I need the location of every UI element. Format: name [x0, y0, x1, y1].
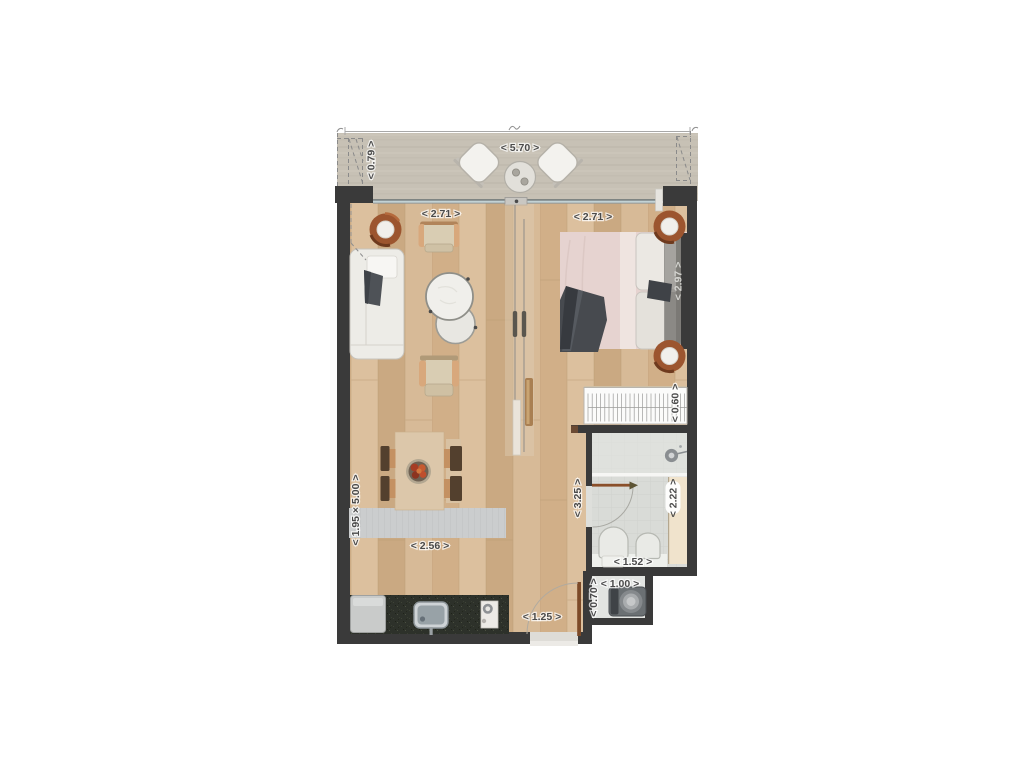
- svg-text:< 0.79 >: < 0.79 >: [366, 141, 378, 180]
- svg-text:< 2.97 >: < 2.97 >: [673, 262, 685, 301]
- svg-text:< 3.25 >: < 3.25 >: [572, 479, 584, 518]
- svg-text:< 2.22 >: < 2.22 >: [668, 479, 680, 518]
- svg-text:< 1.25 >: < 1.25 >: [523, 611, 562, 623]
- svg-text:< 0.70 >: < 0.70 >: [588, 578, 600, 617]
- svg-text:< 0.60 >: < 0.60 >: [670, 384, 682, 423]
- svg-text:< 1.95 × 5.00 >: < 1.95 × 5.00 >: [350, 475, 362, 546]
- svg-text:< 1.52 >: < 1.52 >: [614, 556, 653, 568]
- svg-text:< 2.56 >: < 2.56 >: [411, 540, 450, 552]
- svg-text:< 2.71 >: < 2.71 >: [574, 211, 613, 223]
- svg-text:< 1.00 >: < 1.00 >: [601, 578, 640, 590]
- svg-text:< 2.71 >: < 2.71 >: [422, 208, 461, 220]
- svg-text:< 5.70 >: < 5.70 >: [501, 142, 540, 154]
